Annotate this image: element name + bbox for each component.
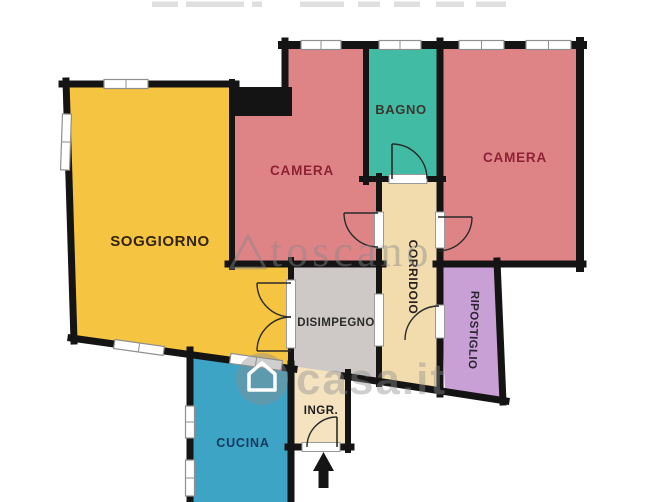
door-threshold: [287, 280, 296, 348]
window: [526, 41, 571, 50]
wall-block: [229, 87, 292, 116]
cropped-top-text-remnant: [394, 2, 420, 8]
window: [186, 406, 195, 438]
window: [459, 41, 504, 50]
cropped-top-text-remnant: [252, 2, 262, 8]
window: [104, 80, 148, 89]
room-label-camera-1: CAMERA: [270, 163, 334, 178]
cropped-top-text-remnant: [358, 2, 380, 8]
window: [301, 41, 341, 50]
room-label-cucina: CUCINA: [216, 436, 269, 450]
room-label-disimpegno: DISIMPEGNO: [297, 317, 374, 329]
agency-watermark: toscano: [270, 227, 432, 276]
window: [61, 114, 72, 170]
cropped-top-text-remnant: [300, 2, 344, 8]
window: [186, 460, 195, 496]
door-threshold: [389, 175, 427, 184]
cropped-top-text-remnant: [152, 2, 178, 8]
cropped-top-text-remnant: [476, 2, 506, 8]
room-label-camera-2: CAMERA: [483, 150, 547, 165]
cropped-top-text-remnant: [186, 2, 244, 8]
room-label-ingresso: INGR.: [304, 405, 338, 417]
cropped-top-text-remnant: [436, 2, 464, 8]
room-label-soggiorno: SOGGIORNO: [110, 233, 210, 250]
portal-watermark: casa.it: [296, 355, 447, 404]
portal-logo-circle: [236, 353, 288, 405]
floor-plan: SOGGIORNOCAMERABAGNOCAMERACORRIDOIORIPOS…: [0, 0, 670, 502]
window: [379, 41, 421, 50]
door-threshold: [375, 294, 384, 346]
door-threshold: [436, 305, 445, 338]
room-label-bagno: BAGNO: [375, 102, 426, 117]
floor-plan-svg: SOGGIORNOCAMERABAGNOCAMERACORRIDOIORIPOS…: [0, 0, 670, 502]
